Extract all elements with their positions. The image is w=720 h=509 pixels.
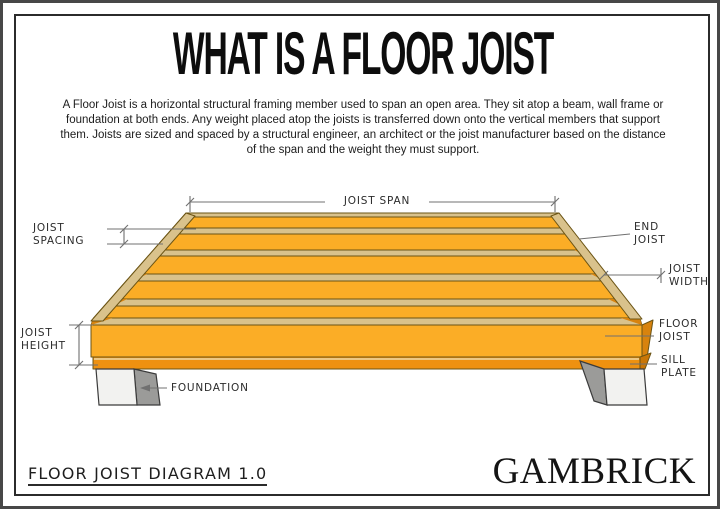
- rim-joist-back-face: [173, 217, 571, 228]
- label-line: HEIGHT: [21, 340, 66, 353]
- joist-3-top-edge: [126, 274, 611, 281]
- label-joist-spacing: JOIST SPACING: [33, 222, 84, 248]
- label-line: JOIST: [21, 327, 66, 340]
- joist-1-top-edge: [168, 228, 576, 234]
- joist-4-top-edge: [104, 299, 630, 306]
- joist-2-top-edge: [148, 250, 592, 256]
- label-line: END: [634, 221, 666, 234]
- infographic-page: WHAT IS A FLOOR JOIST A Floor Joist is a…: [0, 0, 720, 509]
- label-line: SPACING: [33, 235, 84, 248]
- label-line: SILL: [661, 354, 697, 367]
- rim-joist-front-top-edge: [91, 318, 642, 325]
- label-line: FLOOR: [659, 318, 698, 331]
- label-line: JOIST: [33, 222, 84, 235]
- joist-1-face: [154, 234, 588, 250]
- label-foundation: FOUNDATION: [171, 382, 249, 395]
- label-joist-span: JOIST SPAN: [325, 195, 429, 208]
- rim-joist-front-face: [91, 325, 642, 357]
- label-line: PLATE: [661, 367, 697, 380]
- left-pier-front-face: [96, 369, 137, 405]
- label-sill-plate: SILL PLATE: [661, 354, 697, 380]
- right-pier-front-face: [604, 369, 647, 405]
- label-line: JOIST: [634, 234, 666, 247]
- rim-joist-back-top-edge: [183, 213, 563, 217]
- label-floor-joist: FLOOR JOIST: [659, 318, 698, 344]
- label-joist-width: JOIST WIDTH: [669, 263, 709, 289]
- joist-deck: [91, 213, 653, 369]
- footer-doc-title: FLOOR JOIST DIAGRAM 1.0: [28, 464, 267, 486]
- joist-4-face: [94, 306, 640, 318]
- joist-2-face: [132, 256, 606, 274]
- brand-logo: GAMBRICK: [493, 450, 696, 493]
- label-line: JOIST: [669, 263, 709, 276]
- label-joist-height: JOIST HEIGHT: [21, 327, 66, 353]
- label-line: JOIST: [659, 331, 698, 344]
- joist-3-face: [110, 281, 625, 299]
- front-rim-right-end-face: [642, 320, 653, 358]
- end-joist-leader: [579, 234, 630, 239]
- floor-joist-diagram: [3, 3, 720, 509]
- label-line: WIDTH: [669, 276, 709, 289]
- label-end-joist: END JOIST: [634, 221, 666, 247]
